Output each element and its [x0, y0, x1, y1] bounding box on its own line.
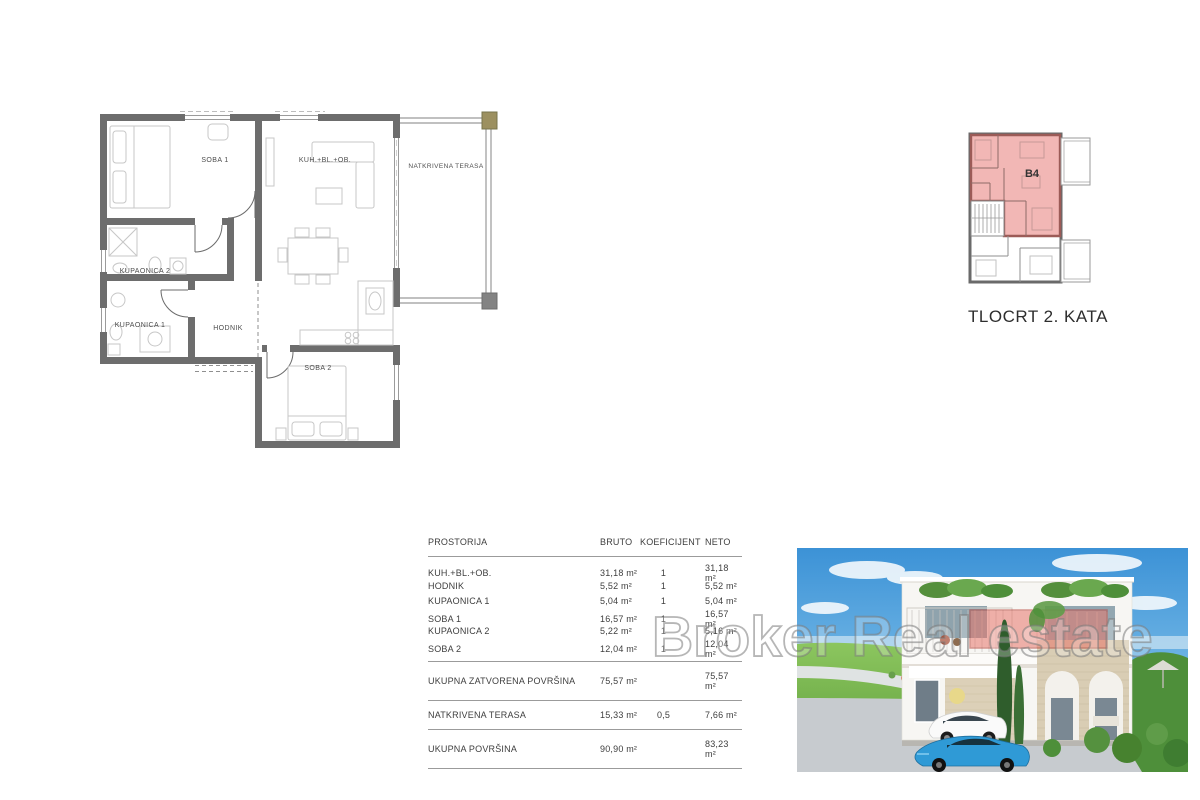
mini-plan-caption: TLOCRT 2. KATA — [948, 307, 1128, 327]
table-row: KUPAONICA 2 5,22 m² 1 5,16 m² — [428, 624, 742, 639]
label-kupaonica2: KUPAONICA 2 — [120, 268, 171, 275]
terrace — [400, 112, 497, 309]
label-soba2: SOBA 2 — [304, 365, 331, 372]
mini-furniture-lower — [976, 256, 1052, 276]
wall-lamp — [949, 688, 965, 704]
unit-label: B4 — [1025, 168, 1040, 180]
table-row: SOBA 1 16,57 m² 1 16,57 m² — [428, 609, 742, 624]
mini-floor-plan: B4 — [968, 128, 1092, 290]
area-table: PROSTORIJA BRUTO KOEFICIJENT NETO KUH.+B… — [428, 533, 742, 769]
listing-sheet: SOBA 1 KUH.+BL.+OB. NATKRIVENA TERASA KU… — [0, 0, 1200, 800]
label-kuhinja: KUH.+BL.+OB. — [299, 157, 351, 164]
label-terasa: NATKRIVENA TERASA — [408, 163, 483, 170]
furniture — [108, 124, 393, 440]
walls — [100, 114, 400, 448]
apartment-floor-plan: SOBA 1 KUH.+BL.+OB. NATKRIVENA TERASA KU… — [100, 110, 500, 455]
col-header-koeficijent: KOEFICIJENT — [640, 537, 705, 547]
col-header-prostorija: PROSTORIJA — [428, 537, 600, 547]
table-total-row: UKUPNA POVRŠINA 90,90 m² 83,23 m² — [428, 730, 742, 769]
label-soba1: SOBA 1 — [201, 157, 228, 164]
table-total-row: UKUPNA ZATVORENA POVRŠINA 75,57 m² 75,57… — [428, 662, 742, 701]
table-row: KUH.+BL.+OB. 31,18 m² 1 31,18 m² — [428, 563, 742, 578]
terrace-column-bottom — [482, 293, 497, 309]
label-kupaonica1: KUPAONICA 1 — [115, 322, 166, 329]
label-hodnik: HODNIK — [213, 325, 243, 332]
mini-stairwell — [971, 201, 1004, 236]
mini-interior-lower — [971, 236, 1060, 282]
col-header-neto: NETO — [705, 537, 742, 547]
terrace-column-top — [482, 112, 497, 129]
table-total-row: NATKRIVENA TERASA 15,33 m² 0,5 7,66 m² — [428, 701, 742, 730]
terrace-sofa — [1093, 716, 1119, 726]
table-row: SOBA 2 12,04 m² 1 12,04 m² — [428, 639, 742, 654]
table-body: KUH.+BL.+OB. 31,18 m² 1 31,18 m² HODNIK … — [428, 557, 742, 662]
stone-arches — [1037, 640, 1129, 740]
table-row: KUPAONICA 1 5,04 m² 1 5,04 m² — [428, 593, 742, 608]
col-header-bruto: BRUTO — [600, 537, 640, 547]
table-header: PROSTORIJA BRUTO KOEFICIJENT NETO — [428, 533, 742, 557]
mini-terraces — [1061, 138, 1090, 282]
building-render-photo — [797, 548, 1188, 772]
table-row: HODNIK 5,52 m² 1 5,52 m² — [428, 578, 742, 593]
